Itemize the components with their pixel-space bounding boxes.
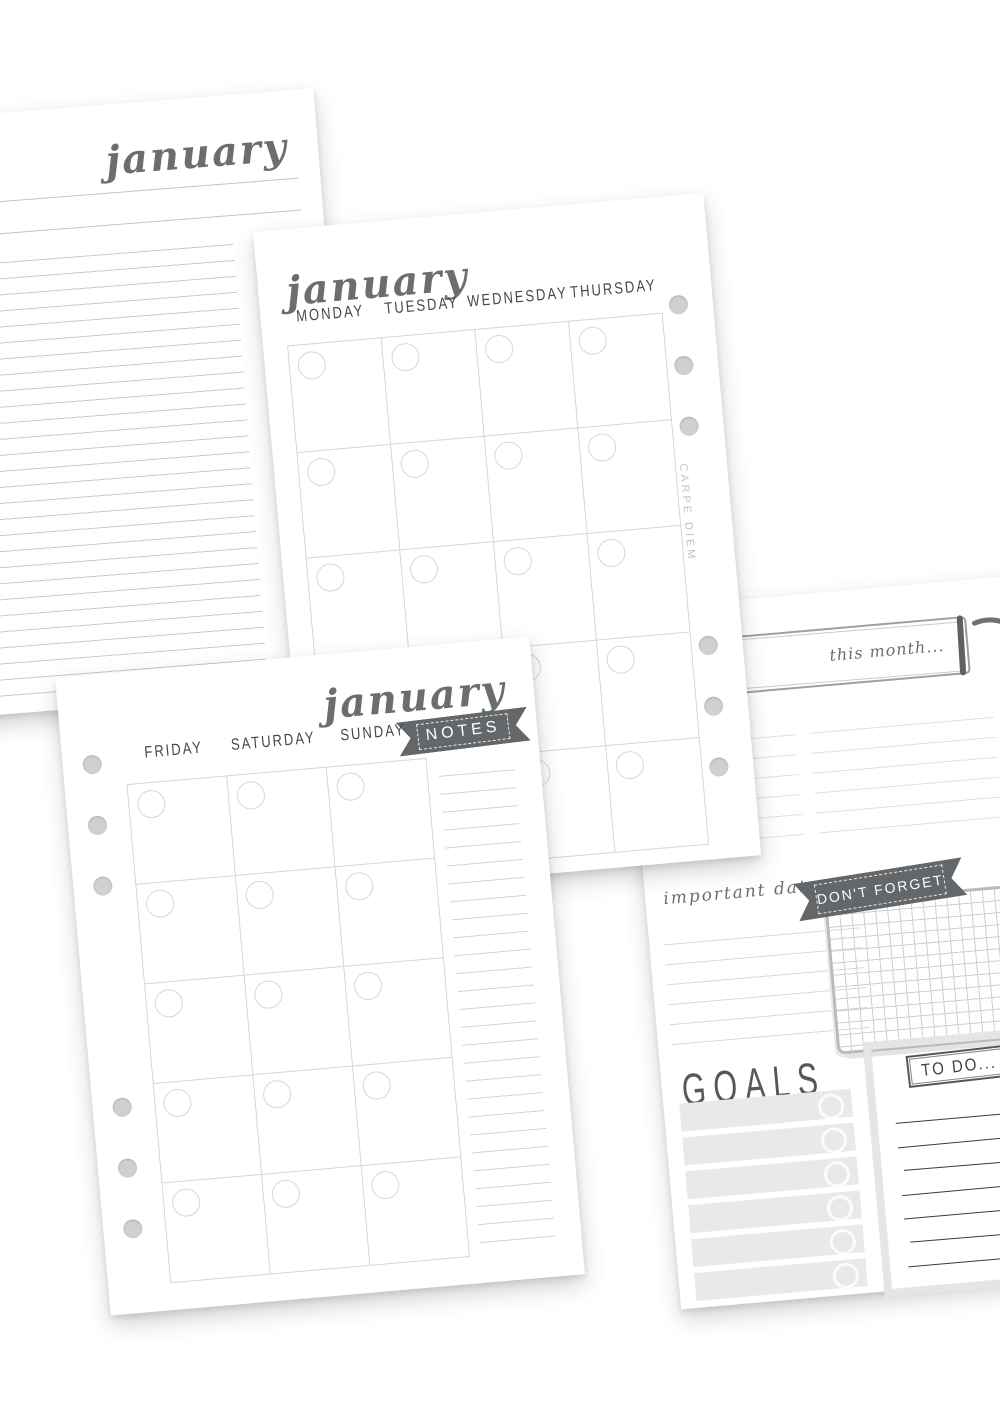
date-circle <box>409 554 439 584</box>
calendar-cell <box>353 1058 461 1166</box>
date-circle <box>344 871 374 901</box>
calendar-page-fri-sun: january NOTES FRIDAY SATURDAY SUNDAY <box>55 637 585 1316</box>
day-header-row: FRIDAY SATURDAY SUNDAY <box>123 720 423 761</box>
notes-page-title: january <box>104 127 289 181</box>
calendar-cell <box>136 876 244 984</box>
calendar-cell <box>297 444 400 558</box>
todo-label: TO DO... <box>920 1052 997 1080</box>
punch-hole <box>117 1158 138 1179</box>
day-header-friday: FRIDAY <box>123 736 224 763</box>
date-circle <box>245 880 275 910</box>
goal-circle <box>817 1092 845 1120</box>
date-circle <box>297 350 327 380</box>
punch-hole <box>112 1097 133 1118</box>
date-circle <box>503 546 533 576</box>
punch-hole-cluster <box>698 635 729 777</box>
calendar-cell <box>597 632 700 746</box>
punch-hole <box>703 696 724 717</box>
calendar-cell <box>569 314 672 428</box>
notes-ribbon-label: NOTES <box>425 718 502 745</box>
date-circle <box>253 979 283 1009</box>
calendar-cell <box>336 859 444 967</box>
planner-pages-mockup: january this month... important dates DO… <box>0 0 1000 1412</box>
date-circle <box>271 1179 301 1209</box>
date-circle <box>370 1170 400 1200</box>
calendar-cell <box>154 1075 262 1183</box>
calendar-cell <box>578 420 681 534</box>
punch-hole <box>673 355 694 376</box>
goal-circle <box>832 1262 860 1290</box>
date-circle <box>362 1070 392 1100</box>
date-circle <box>578 326 608 356</box>
calendar-cell <box>391 436 494 550</box>
calendar-cell <box>145 976 253 1084</box>
calendar-cell <box>344 958 452 1066</box>
date-circle <box>171 1187 201 1217</box>
todo-panel: TO DO... <box>863 1021 1000 1297</box>
day-header-thursday: THURSDAY <box>567 275 660 302</box>
punch-hole <box>82 754 103 775</box>
ruled-lines <box>808 698 1000 842</box>
punch-hole <box>123 1219 144 1240</box>
date-circle <box>306 456 336 486</box>
date-circle <box>136 789 166 819</box>
goal-bars <box>679 1089 868 1301</box>
punch-hole-cluster <box>668 294 699 436</box>
punch-hole <box>668 294 689 315</box>
calendar-cell <box>588 526 691 640</box>
punch-hole <box>698 635 719 656</box>
date-circle <box>162 1088 192 1118</box>
date-circle <box>236 780 266 810</box>
calendar-cell <box>236 867 344 975</box>
calendar-cell <box>382 330 485 444</box>
calendar-cell <box>606 738 709 852</box>
ruled-line <box>0 178 298 218</box>
punch-hole-cluster <box>112 1097 143 1239</box>
todo-label-box: TO DO... <box>906 1044 1000 1088</box>
calendar-cell <box>128 776 236 884</box>
date-circle <box>353 971 383 1001</box>
calendar-cell <box>494 534 597 648</box>
calendar-cell <box>227 768 335 876</box>
todo-ruled-lines <box>894 1082 1000 1267</box>
day-header-wednesday: WEDNESDAY <box>466 283 568 310</box>
punch-hole-cluster <box>82 754 113 896</box>
date-circle <box>484 334 514 364</box>
date-circle <box>400 448 430 478</box>
calendar-cell <box>327 759 435 867</box>
date-circle <box>262 1079 292 1109</box>
calendar-cell <box>162 1175 270 1283</box>
date-circle <box>587 432 617 462</box>
calendar-grid <box>127 758 471 1283</box>
date-circle <box>145 889 175 919</box>
goal-circle <box>829 1228 857 1256</box>
date-circle <box>315 563 345 593</box>
date-circle <box>596 538 626 568</box>
date-circle <box>335 771 365 801</box>
punch-hole <box>709 757 730 778</box>
goal-circle <box>826 1194 854 1222</box>
punch-hole <box>93 876 114 897</box>
date-circle <box>615 750 645 780</box>
calendar-cell <box>253 1067 361 1175</box>
punch-hole <box>679 416 700 437</box>
goal-circle <box>820 1126 848 1154</box>
calendar-cell <box>485 428 588 542</box>
date-circle <box>390 342 420 372</box>
calendar-cell <box>245 967 353 1075</box>
calendar-cell <box>262 1166 370 1274</box>
date-circle <box>605 644 635 674</box>
date-circle <box>493 440 523 470</box>
date-circle <box>154 988 184 1018</box>
punch-hole <box>87 815 108 836</box>
calendar-cell <box>288 338 391 452</box>
day-header-saturday: SATURDAY <box>223 727 324 754</box>
ruled-lines <box>0 229 268 715</box>
calendar-cell <box>362 1157 470 1265</box>
goal-circle <box>823 1160 851 1188</box>
calendar-cell <box>475 322 578 436</box>
this-month-label: this month... <box>829 638 945 664</box>
